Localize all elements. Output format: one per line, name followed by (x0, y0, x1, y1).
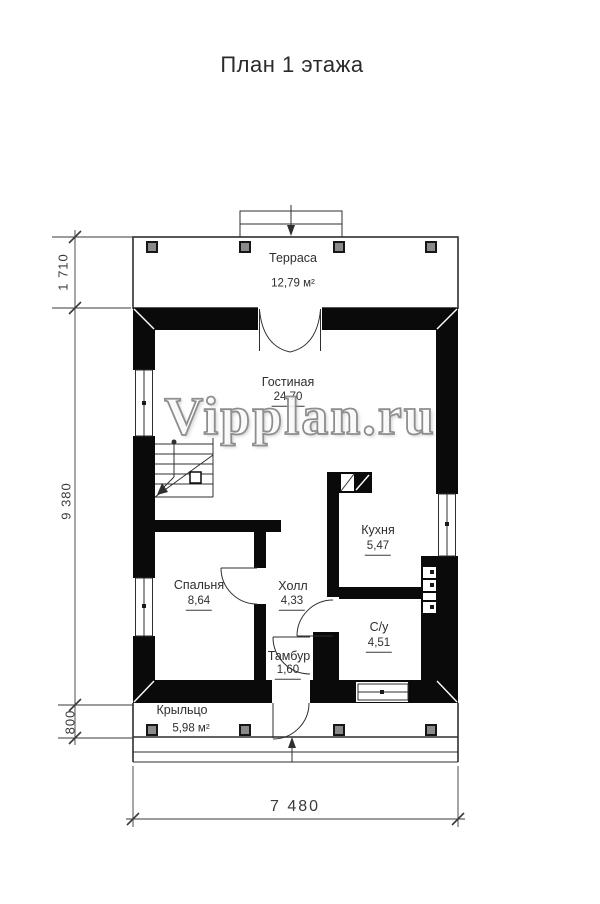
room-area-tambour: 1,60 (275, 665, 301, 680)
wall-corner-seams (134, 309, 457, 702)
room-area-porch: 5,98 м² (172, 723, 209, 735)
room-label-tambour: Тамбур (268, 650, 310, 663)
room-label-terrace: Терраса (269, 252, 317, 265)
bedroom-door-symbol (221, 568, 257, 604)
room-label-porch: Крыльцо (157, 704, 208, 717)
watermark: Vipplan.ru (164, 385, 436, 447)
terrace-outline (133, 237, 458, 308)
entrance-door-symbol (272, 679, 310, 739)
room-label-hall: Холл (278, 580, 307, 593)
room-label-bedroom: Спальня (174, 579, 224, 592)
dimension-porch-depth: 800 (64, 710, 77, 735)
walls (133, 308, 458, 703)
room-label-kitchen: Кухня (361, 524, 394, 537)
window-bedroom (133, 578, 155, 636)
floor-plan-page: План 1 этажа Терраса 12,79 м² Гостиная 2… (0, 0, 600, 904)
room-area-bedroom: 8,64 (186, 596, 212, 611)
terrace-door-symbol (258, 307, 322, 352)
terrace-steps-symbol (240, 205, 342, 237)
dimension-house-length: 9 380 (60, 482, 73, 520)
dimension-terrace-depth: 1 710 (57, 253, 70, 291)
dimension-line-bottom (126, 766, 465, 827)
window-bathroom (356, 682, 408, 702)
floor-plan-drawing (0, 0, 600, 904)
room-area-kitchen: 5,47 (365, 541, 391, 556)
room-area-terrace: 12,79 м² (271, 278, 315, 290)
room-area-hall: 4,33 (279, 596, 305, 611)
room-area-bathroom: 4,51 (366, 638, 392, 653)
dimension-house-width: 7 480 (270, 799, 320, 815)
window-kitchen (436, 494, 458, 556)
room-label-bathroom: С/у (370, 621, 389, 634)
page-title: План 1 этажа (220, 54, 363, 76)
window-living (133, 370, 155, 436)
